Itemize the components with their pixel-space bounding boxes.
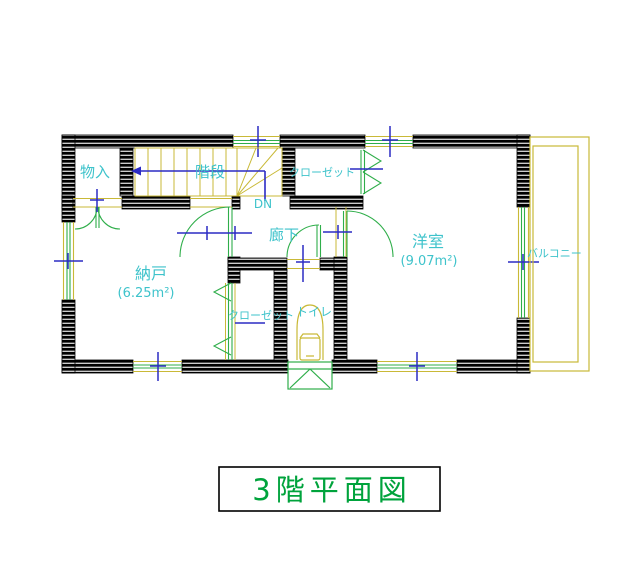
title-block: 3階平面図: [219, 467, 440, 511]
label-closet-lower: クローゼット: [228, 309, 294, 322]
label-toilet: トイレ: [296, 305, 332, 319]
wall-storage-stairs: [120, 148, 133, 196]
window-right: [508, 207, 539, 318]
title-text: 3階平面図: [252, 473, 411, 507]
wall-mid-3: [232, 196, 240, 209]
window-left: [54, 222, 83, 300]
wall-top-1: [62, 135, 233, 148]
label-stairs-direction: DN: [254, 197, 272, 211]
label-storeroom: 納戸: [135, 264, 167, 283]
label-balcony: バルコニー: [527, 247, 582, 260]
stair-winders: [237, 148, 282, 196]
label-stairs: 階段: [195, 163, 225, 181]
window-bottom-2: [377, 352, 457, 381]
wall-left-2: [62, 300, 75, 373]
wall-mid-1: [62, 196, 73, 209]
wall-mid-4: [290, 196, 363, 209]
bay-window: [288, 362, 332, 389]
window-bottom-1: [133, 352, 182, 381]
floor-plan-drawing: 物入 階段 DN クローゼット 廊下 洋室 (9.07m²) 納戸 (6.25m…: [0, 0, 640, 560]
label-western-room-area: (9.07m²): [401, 254, 458, 269]
wall-bottom-2: [182, 360, 288, 373]
label-hallway: 廊下: [269, 226, 299, 244]
room-labels: 物入 階段 DN クローゼット 廊下 洋室 (9.07m²) 納戸 (6.25m…: [80, 163, 582, 322]
window-top-1: [233, 126, 280, 157]
wall-right-1: [517, 135, 530, 207]
upper-closet-bifold-door: [361, 150, 381, 194]
wall-westroom-left: [334, 257, 347, 362]
wall-hall-bottom-1: [228, 258, 287, 270]
label-western-room: 洋室: [412, 232, 444, 251]
window-top-2: [365, 126, 413, 157]
wall-top-3: [413, 135, 530, 148]
wall-top-2: [280, 135, 365, 148]
label-storeroom-area: (6.25m²): [118, 286, 175, 301]
wall-mid-2: [122, 196, 190, 209]
label-storage: 物入: [80, 163, 110, 181]
floor-plan-page: 物入 階段 DN クローゼット 廊下 洋室 (9.07m²) 納戸 (6.25m…: [0, 0, 640, 560]
label-closet-upper: クローゼット: [289, 166, 355, 179]
wall-right-2: [517, 318, 530, 373]
storage-double-door: [73, 189, 122, 229]
